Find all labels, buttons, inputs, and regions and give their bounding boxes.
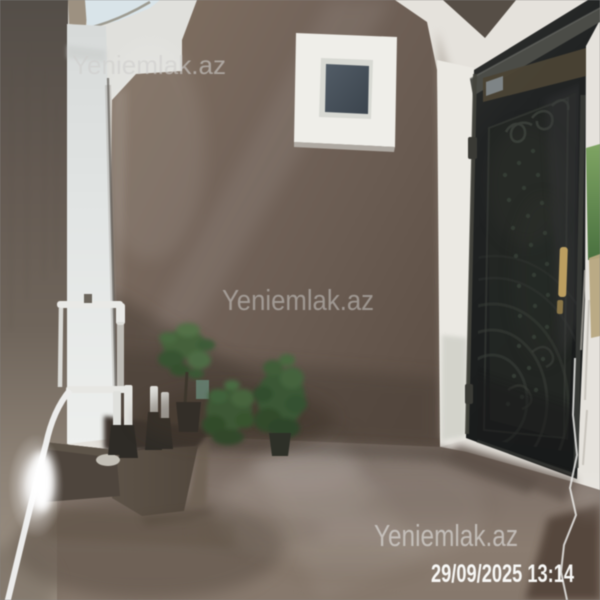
svg-text:Yeniemlak.az: Yeniemlak.az (72, 50, 226, 80)
svg-text:Yeniemlak.az: Yeniemlak.az (222, 285, 374, 317)
svg-text:29/09/2025 13:14: 29/09/2025 13:14 (431, 560, 574, 588)
svg-text:Yeniemlak.az: Yeniemlak.az (374, 518, 518, 553)
